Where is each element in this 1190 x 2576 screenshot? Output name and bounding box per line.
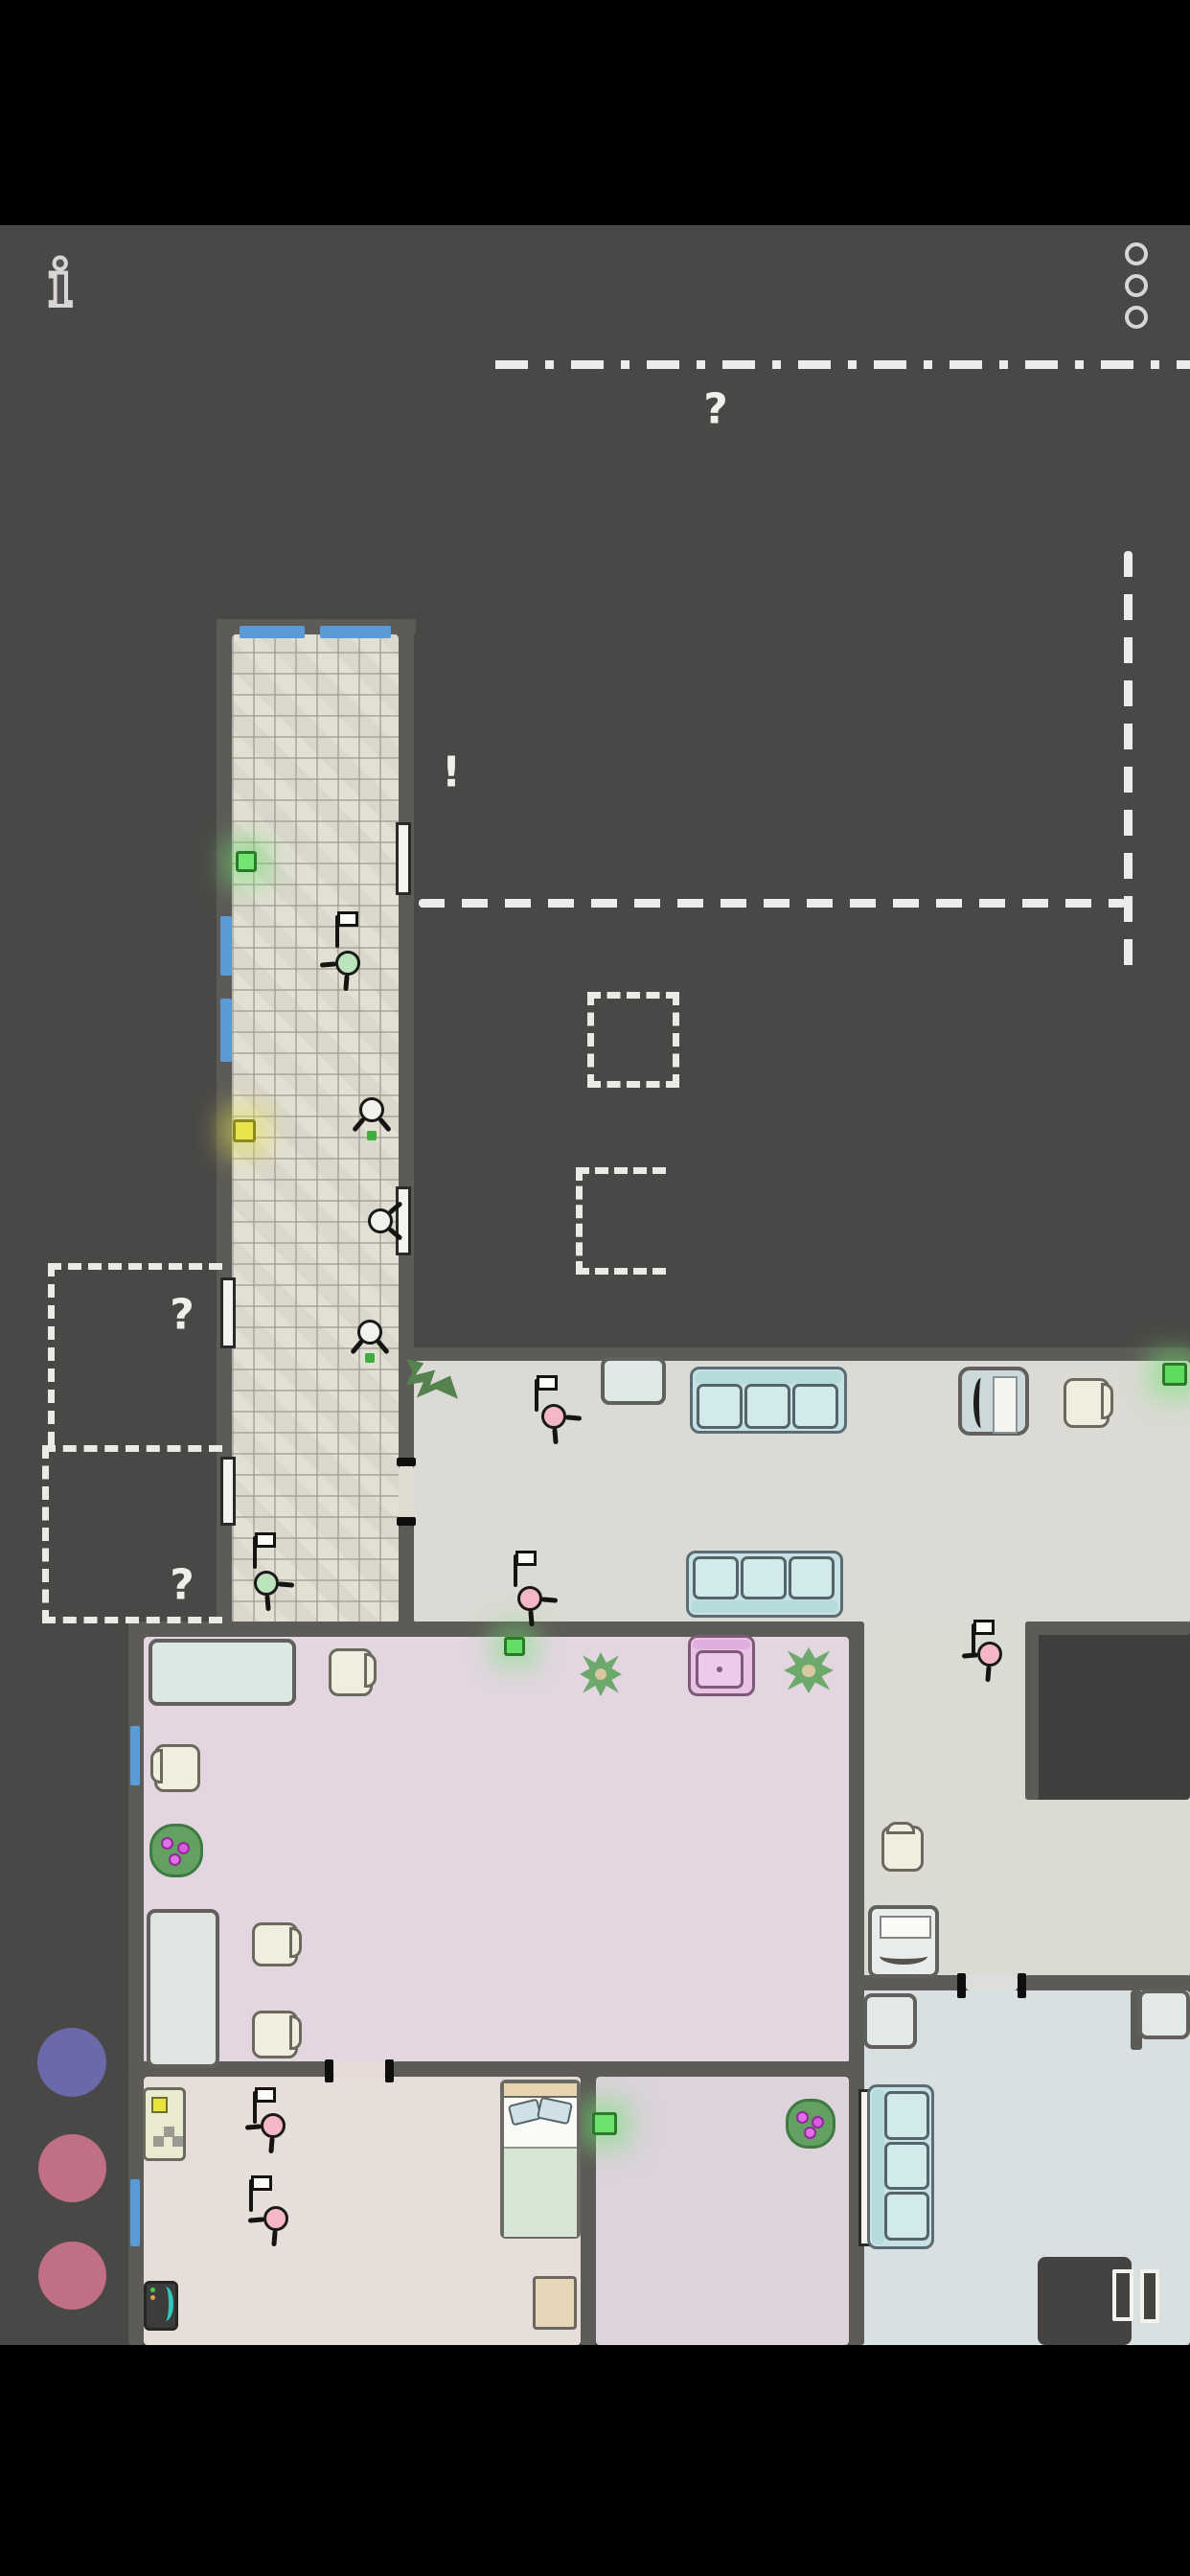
character[interactable]: [333, 949, 362, 977]
pause-icon: [1140, 2269, 1159, 2323]
crew-member-button-3[interactable]: [38, 2242, 106, 2310]
white-door-marker: [396, 822, 411, 895]
unexplored-room-outline: [587, 992, 679, 1088]
pause-button[interactable]: [1038, 2257, 1132, 2345]
stove-panel: [880, 1916, 931, 1939]
black-door-marker: [385, 2059, 394, 2082]
crew-member-button-2[interactable]: [38, 2134, 106, 2202]
bed: [500, 2080, 581, 2239]
armchair: [154, 1744, 200, 1792]
plant-pot: [595, 1668, 606, 1680]
black-door-marker: [397, 1517, 416, 1526]
flower: [169, 1853, 181, 1866]
alert-mark: !: [442, 748, 461, 797]
crew-member-button-1[interactable]: [37, 2028, 106, 2097]
sofa-cushion: [789, 1556, 835, 1599]
character-arm: [265, 1595, 271, 1611]
character[interactable]: [357, 1095, 386, 1124]
unknown-area-mark: ?: [170, 1291, 195, 1340]
blue-door-marker: [130, 1726, 140, 1785]
carried-item: [365, 1353, 375, 1363]
vending-machine: [958, 1367, 1029, 1436]
character[interactable]: [515, 1584, 544, 1613]
waypoint-flag: [337, 911, 358, 927]
sofa-back: [872, 2089, 884, 2244]
character-head: [335, 951, 360, 976]
wall: [581, 2061, 596, 2345]
armchair-back: [150, 1749, 163, 1783]
green-pickup[interactable]: [592, 2112, 617, 2135]
info-icon: i: [48, 246, 72, 321]
flower: [796, 2111, 809, 2124]
character-arm: [553, 1428, 559, 1444]
sofa-cushion: [693, 1556, 739, 1599]
character-arm: [320, 962, 336, 968]
doorway-patch: [399, 1465, 414, 1520]
character-head: [254, 1571, 279, 1596]
doorway-patch: [332, 2061, 387, 2077]
character[interactable]: [252, 1569, 281, 1598]
character-arm: [962, 1653, 978, 1659]
flower: [177, 1842, 190, 1854]
wall: [399, 1526, 414, 1635]
machine-block: [172, 2136, 183, 2147]
sofa-cushion: [884, 2142, 929, 2191]
unexplored-room-outline: [42, 1445, 222, 1623]
armchair: [252, 2011, 298, 2058]
info-button[interactable]: i: [27, 240, 94, 328]
black-door-marker: [397, 1458, 416, 1466]
blue-door-marker: [320, 626, 391, 638]
green-pickup[interactable]: [236, 851, 257, 872]
menu-button[interactable]: [1125, 242, 1152, 334]
blue-door-marker: [220, 916, 232, 976]
waypoint-flag: [973, 1620, 995, 1635]
doorway-patch: [966, 1975, 1018, 1990]
wall: [1025, 1975, 1190, 1990]
bed-headboard: [504, 2083, 577, 2098]
flower: [804, 2127, 816, 2139]
green-pickup[interactable]: [1162, 1363, 1187, 1386]
character-arm: [245, 2125, 262, 2130]
sofa-cushion: [792, 1384, 838, 1429]
character-arm: [248, 2218, 264, 2223]
waypoint-flag: [515, 1551, 537, 1566]
table: [149, 1639, 296, 1706]
character-head: [368, 1208, 393, 1233]
unexplored-room-outline: [576, 1167, 666, 1275]
blue-door-marker: [130, 2179, 140, 2246]
potted-plant: [580, 1652, 622, 1696]
table: [863, 1993, 917, 2049]
unexplored-boundary-dashes: [1124, 551, 1133, 982]
flower-bush: [149, 1824, 203, 1877]
unexplored-room-outline: [48, 1263, 222, 1445]
safe-led-green: [150, 2288, 155, 2292]
armchair-back: [289, 1927, 302, 1958]
machine-block: [153, 2136, 164, 2147]
character-arm: [565, 1415, 582, 1421]
character-arm: [541, 1598, 558, 1603]
black-door-marker: [1018, 1973, 1026, 1998]
wall: [1025, 1621, 1039, 1800]
machine-button: [151, 2097, 168, 2113]
wall: [1025, 1621, 1190, 1635]
carried-item: [367, 1131, 377, 1140]
armchair-back: [886, 1822, 915, 1834]
sofa-back: [691, 1600, 838, 1613]
pause-icon: [1112, 2269, 1133, 2321]
sofa-cushion: [697, 1384, 743, 1429]
game-screen: { "hud": { "info_glyph": "i", "menu_icon…: [0, 0, 1190, 2576]
character-head: [359, 1097, 384, 1122]
machine-panel: [143, 2087, 186, 2161]
character[interactable]: [975, 1640, 1004, 1668]
wall: [399, 1347, 1190, 1361]
character-arm: [278, 1582, 294, 1588]
waypoint-flag: [251, 2175, 272, 2191]
loveseat-back: [693, 1640, 750, 1649]
sofa: [690, 1367, 847, 1434]
menu-circle-icon: [1125, 306, 1148, 329]
table: [601, 1357, 666, 1405]
safe-led-orange: [150, 2295, 155, 2300]
character-head: [263, 2206, 288, 2231]
sofa-cushion: [744, 1384, 790, 1429]
table: [1138, 1989, 1190, 2039]
bed-pillow: [537, 2097, 573, 2126]
sofa-cushion: [741, 1556, 787, 1599]
menu-circle-icon: [1125, 274, 1148, 297]
character[interactable]: [262, 2204, 290, 2233]
bottom-black-bar: [0, 2345, 1190, 2576]
safe-handle: [157, 2287, 173, 2321]
yellow-pickup[interactable]: [233, 1119, 256, 1142]
armchair-back: [289, 2015, 302, 2050]
stove: [868, 1905, 939, 1978]
armchair: [1064, 1378, 1110, 1428]
black-door-marker: [325, 2059, 333, 2082]
blue-door-marker: [220, 999, 232, 1062]
plant-pot: [802, 1665, 816, 1676]
character[interactable]: [366, 1207, 395, 1235]
menu-circle-icon: [1125, 242, 1148, 265]
unexplored-boundary-dashes: [495, 360, 1190, 369]
character[interactable]: [355, 1318, 384, 1346]
character[interactable]: [259, 2111, 287, 2140]
corridor-floor: [232, 634, 399, 1623]
character-head: [517, 1586, 542, 1611]
character-arm: [529, 1610, 535, 1626]
bed-blanket: [504, 2147, 577, 2237]
green-pickup[interactable]: [504, 1637, 525, 1656]
dark-room-floor: [1031, 1629, 1190, 1800]
character-head: [261, 2113, 286, 2138]
unknown-area-mark: ?: [170, 1561, 195, 1610]
safe-device: [144, 2281, 178, 2331]
white-door-marker: [220, 1277, 236, 1348]
character-head: [977, 1642, 1002, 1667]
armchair-back: [1101, 1383, 1113, 1419]
armchair: [881, 1826, 924, 1872]
wall: [128, 1621, 862, 1637]
sofa-cushion: [884, 2091, 929, 2140]
armchair: [252, 1922, 298, 1966]
waypoint-flag: [255, 2087, 276, 2103]
sofa: [686, 1551, 843, 1618]
character-head: [357, 1320, 382, 1345]
blue-door-marker: [240, 626, 305, 638]
sofa-cushion: [884, 2192, 929, 2241]
waypoint-flag: [537, 1375, 558, 1391]
loveseat: [688, 1635, 755, 1696]
stove-handle: [880, 1947, 927, 1965]
white-door-marker: [396, 1186, 411, 1255]
unknown-area-mark: ?: [703, 385, 728, 434]
armchair: [329, 1648, 373, 1696]
loveseat-cushion: [696, 1650, 744, 1689]
potted-plant: [784, 1647, 834, 1693]
sofa: [867, 2084, 934, 2249]
character-head: [541, 1404, 566, 1429]
white-door-marker: [220, 1457, 236, 1526]
vending-machine-panel: [993, 1376, 1018, 1434]
unexplored-boundary-dashes: [419, 899, 1126, 908]
armchair-back: [364, 1653, 377, 1688]
black-door-marker: [957, 1973, 966, 1998]
wall: [393, 2061, 862, 2077]
flower: [161, 1837, 173, 1850]
map-layer: ?!??: [0, 0, 1190, 2576]
vending-machine-detail: [973, 1378, 989, 1428]
character[interactable]: [539, 1402, 568, 1431]
waypoint-flag: [255, 1532, 276, 1548]
nightstand: [533, 2276, 577, 2330]
table: [147, 1909, 219, 2068]
flower-bush: [786, 2099, 835, 2149]
flower: [812, 2116, 824, 2128]
sofa-back: [695, 1371, 842, 1384]
